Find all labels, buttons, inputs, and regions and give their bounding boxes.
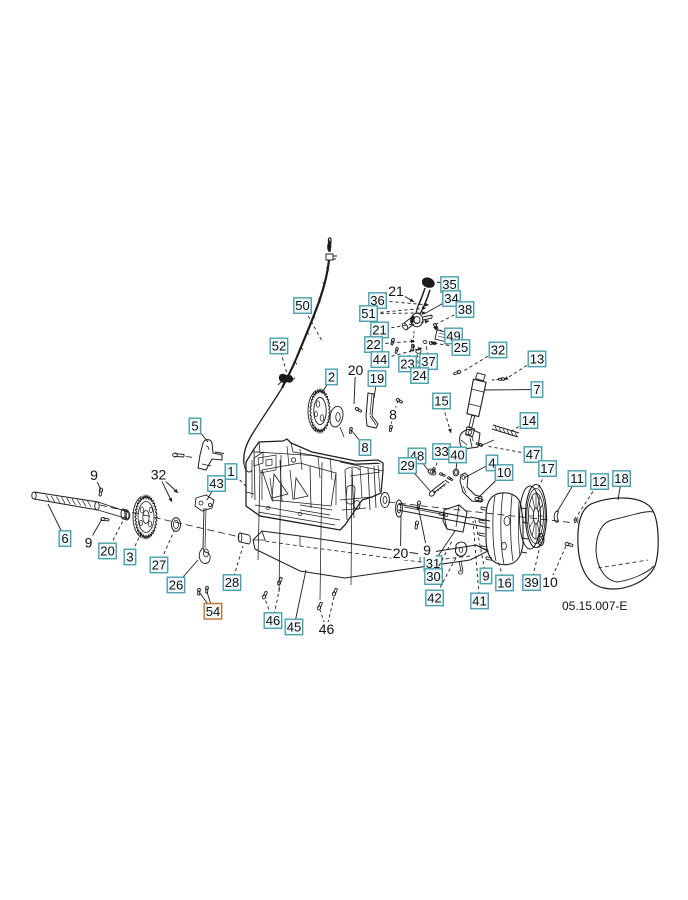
svg-text:27: 27	[152, 558, 166, 573]
svg-text:29: 29	[400, 458, 414, 473]
svg-text:35: 35	[442, 277, 456, 292]
svg-text:11: 11	[570, 471, 584, 486]
svg-text:38: 38	[458, 302, 472, 317]
svg-text:43: 43	[209, 476, 223, 491]
svg-text:46: 46	[319, 621, 335, 637]
svg-text:32: 32	[491, 343, 505, 358]
svg-text:50: 50	[295, 298, 309, 313]
svg-text:3: 3	[126, 550, 133, 565]
svg-text:52: 52	[272, 339, 286, 354]
svg-text:8: 8	[389, 407, 397, 423]
svg-text:9: 9	[423, 542, 431, 558]
svg-text:45: 45	[287, 620, 301, 635]
svg-text:39: 39	[524, 575, 538, 590]
svg-text:14: 14	[522, 413, 536, 428]
svg-text:32: 32	[151, 467, 167, 483]
svg-text:6: 6	[61, 531, 68, 546]
svg-text:22: 22	[366, 337, 380, 352]
svg-text:18: 18	[614, 471, 628, 486]
svg-text:2: 2	[328, 370, 335, 385]
svg-text:21: 21	[388, 283, 404, 299]
svg-text:20: 20	[348, 362, 364, 378]
svg-text:5: 5	[191, 419, 198, 434]
svg-text:16: 16	[497, 576, 511, 591]
svg-text:7: 7	[533, 382, 540, 397]
svg-text:13: 13	[530, 352, 544, 367]
svg-text:20: 20	[100, 544, 114, 559]
svg-text:44: 44	[373, 352, 387, 367]
svg-text:1: 1	[227, 464, 234, 479]
svg-text:26: 26	[169, 578, 183, 593]
svg-text:20: 20	[393, 545, 409, 561]
svg-text:40: 40	[450, 448, 464, 463]
svg-text:15: 15	[434, 394, 448, 409]
svg-text:51: 51	[361, 306, 375, 321]
svg-text:54: 54	[206, 604, 220, 619]
svg-text:46: 46	[266, 613, 280, 628]
svg-text:9: 9	[90, 467, 98, 483]
svg-text:37: 37	[421, 354, 435, 369]
svg-text:9: 9	[482, 569, 489, 584]
svg-text:33: 33	[434, 444, 448, 459]
svg-text:24: 24	[412, 368, 426, 383]
svg-text:9: 9	[85, 535, 93, 551]
svg-text:42: 42	[427, 591, 441, 606]
svg-text:28: 28	[225, 575, 239, 590]
svg-text:10: 10	[497, 465, 511, 480]
svg-text:8: 8	[361, 440, 368, 455]
svg-text:30: 30	[426, 569, 440, 584]
svg-text:17: 17	[540, 461, 554, 476]
svg-text:47: 47	[526, 447, 540, 462]
svg-text:41: 41	[472, 594, 486, 609]
svg-text:10: 10	[542, 574, 558, 590]
svg-text:05.15.007-E: 05.15.007-E	[562, 599, 627, 613]
svg-text:12: 12	[592, 474, 606, 489]
svg-text:21: 21	[372, 323, 386, 338]
svg-text:19: 19	[370, 371, 384, 386]
svg-text:25: 25	[454, 340, 468, 355]
